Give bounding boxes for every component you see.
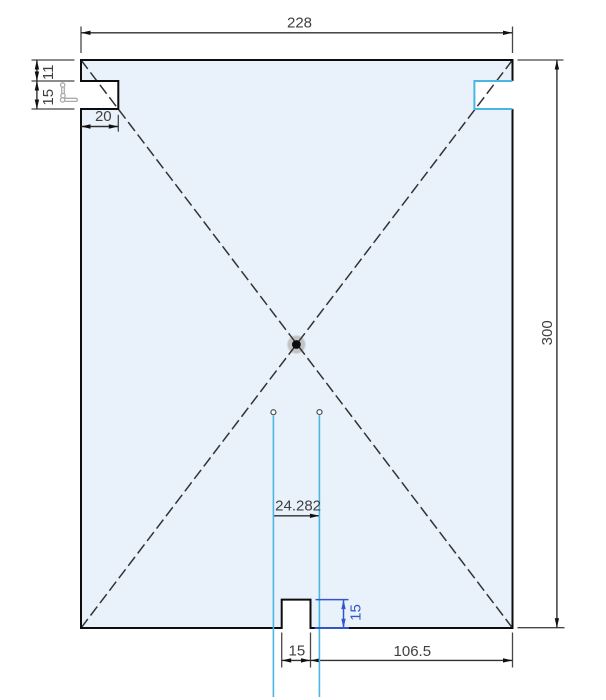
svg-text:15: 15 <box>40 89 57 106</box>
svg-text:11: 11 <box>40 65 57 81</box>
svg-text:20: 20 <box>95 108 112 125</box>
svg-text:228: 228 <box>287 15 312 32</box>
svg-text:15: 15 <box>347 604 364 621</box>
svg-text:106.5: 106.5 <box>394 643 432 660</box>
svg-text:15: 15 <box>289 642 306 659</box>
svg-text:300: 300 <box>539 320 556 345</box>
svg-text:24.282: 24.282 <box>275 497 321 514</box>
